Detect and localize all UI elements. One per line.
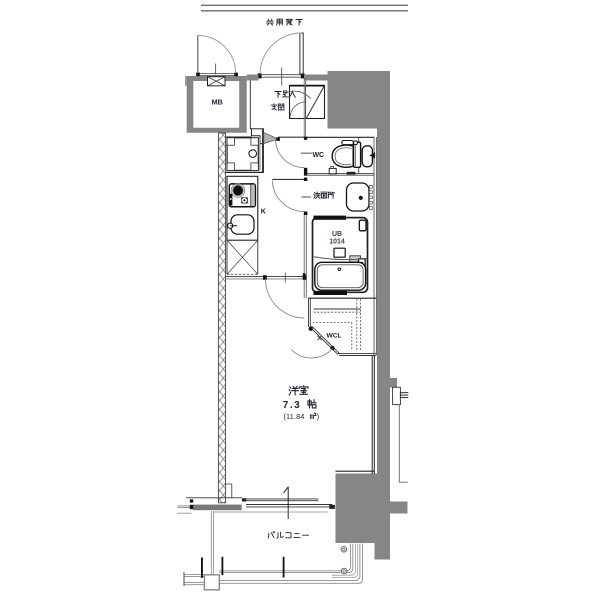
svg-text:): ) (317, 412, 319, 421)
svg-text:WC: WC (312, 152, 324, 159)
svg-text:K: K (261, 206, 267, 215)
svg-text:MB: MB (212, 98, 223, 107)
svg-text:UB: UB (332, 231, 342, 238)
svg-text:7.3: 7.3 (283, 400, 301, 411)
svg-text:1014: 1014 (329, 238, 345, 245)
svg-text:(11.84: (11.84 (283, 412, 304, 421)
svg-text:WCL: WCL (326, 333, 341, 340)
